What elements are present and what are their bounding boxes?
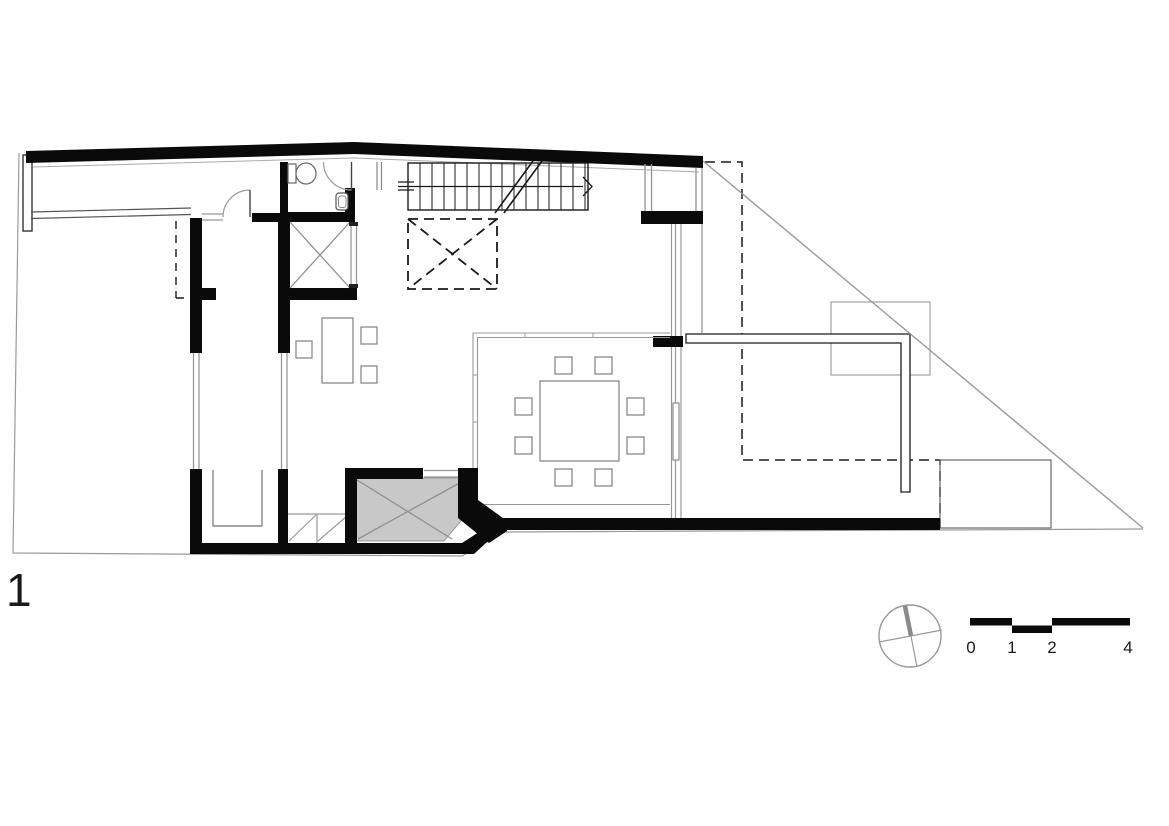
- scale-label: 1: [1007, 638, 1016, 657]
- wall-segment: [190, 469, 202, 547]
- scale-label: 2: [1047, 638, 1056, 657]
- wall-segment: [280, 212, 355, 222]
- ramp-top-window: [424, 471, 458, 478]
- property-boundary-line: [13, 153, 1143, 556]
- north-arrow-icon: [879, 605, 942, 667]
- wall-segment: [497, 518, 940, 530]
- toilet-tank: [288, 164, 296, 183]
- wall-segment: [278, 213, 290, 353]
- terrace-l-wall: [686, 334, 910, 492]
- southeast-terrace-outline: [940, 460, 1051, 528]
- entry-steps-hatch: [288, 514, 348, 543]
- chair: [361, 366, 377, 383]
- wall-segment: [278, 469, 288, 546]
- stair-well-outline: [213, 470, 262, 526]
- south-wall: [190, 518, 940, 554]
- dining-area: [473, 333, 670, 505]
- outlined-wall-end: [23, 155, 32, 231]
- dashed-x-mark: [408, 219, 497, 289]
- staircase: [398, 161, 592, 213]
- door-jamb-lines: [377, 162, 382, 190]
- wall-segment: [278, 288, 357, 300]
- closet-x-mark: [290, 222, 350, 288]
- floor-plan-sheet: 0 1 2 4 1: [0, 0, 1169, 826]
- scale-bar-segment: [1052, 618, 1130, 626]
- west-glass-window: [194, 353, 200, 469]
- window-end-cap: [349, 222, 358, 226]
- diagonal-boundary-line: [703, 161, 1143, 528]
- toilet-bowl: [296, 163, 316, 184]
- chair: [627, 398, 644, 415]
- left-yard: [23, 155, 191, 298]
- scale-label: 0: [966, 638, 975, 657]
- wall-segment: [190, 300, 202, 353]
- desk-table: [322, 318, 353, 383]
- entry-and-corridor: [190, 190, 290, 547]
- scale-label: 4: [1123, 638, 1132, 657]
- sheet-number-label: 1: [6, 564, 32, 616]
- chair: [515, 437, 532, 454]
- wall-segment: [345, 468, 357, 543]
- north-wall: [26, 142, 703, 172]
- scale-bar-segment: [1012, 626, 1052, 634]
- chair: [555, 357, 572, 374]
- garden-fence-wall: [31, 208, 191, 219]
- chair: [595, 469, 612, 486]
- wall-segment: [190, 218, 202, 288]
- floor-plan-canvas: 0 1 2 4 1: [0, 0, 1169, 826]
- closet-side-window: [351, 222, 357, 288]
- scale-bar: 0 1 2 4: [966, 618, 1132, 657]
- entry-door-swing-arc: [223, 190, 250, 217]
- glass-mullion: [673, 403, 679, 460]
- void-skylight-marker: [408, 219, 497, 289]
- dining-table: [540, 381, 619, 461]
- chair: [555, 469, 572, 486]
- sitting-area: [296, 318, 377, 383]
- wall-segment: [280, 162, 288, 213]
- site-boundary: [13, 153, 1143, 556]
- corridor-glass-window: [282, 353, 288, 469]
- compass-needle: [905, 606, 911, 636]
- scale-bar-segment: [970, 618, 1012, 626]
- entry-sidelight-window: [202, 214, 223, 220]
- wall-segment: [190, 288, 216, 300]
- wall-segment: [190, 543, 462, 554]
- bathroom-door-swing-arc: [324, 162, 352, 190]
- chair: [627, 437, 644, 454]
- chair: [361, 327, 377, 344]
- chair: [515, 398, 532, 415]
- wall-segment: [458, 468, 478, 505]
- dashed-wall-marker: [176, 221, 190, 298]
- window-end-cap: [349, 284, 358, 288]
- chair: [595, 357, 612, 374]
- chair: [296, 341, 312, 358]
- wall-segment: [641, 211, 703, 224]
- glass-panel-lines: [672, 224, 682, 518]
